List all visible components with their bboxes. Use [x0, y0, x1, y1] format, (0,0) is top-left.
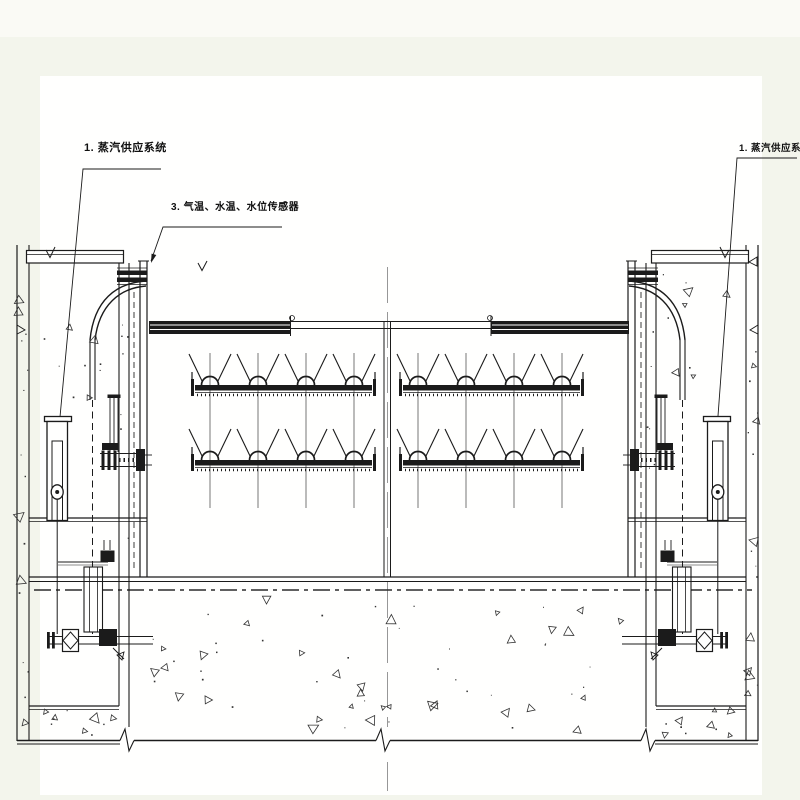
section-drawing: 1. 蒸汽供应系统 3. 气温、水温、水位传感器 1. 蒸汽供应系统 [0, 0, 800, 800]
callout-sensors: 3. 气温、水温、水位传感器 [171, 200, 300, 213]
callout-steam-supply-left: 1. 蒸汽供应系统 [84, 140, 167, 154]
drawing-sheet: 1. 蒸汽供应系统 3. 气温、水温、水位传感器 1. 蒸汽供应系统 [0, 0, 800, 800]
insulated-header-right [491, 321, 629, 334]
callout-steam-supply-right: 1. 蒸汽供应系统 [739, 142, 800, 154]
page-background-top [0, 0, 800, 37]
ground-line [17, 727, 758, 753]
paper [40, 76, 762, 795]
insulated-header-left [149, 321, 291, 334]
